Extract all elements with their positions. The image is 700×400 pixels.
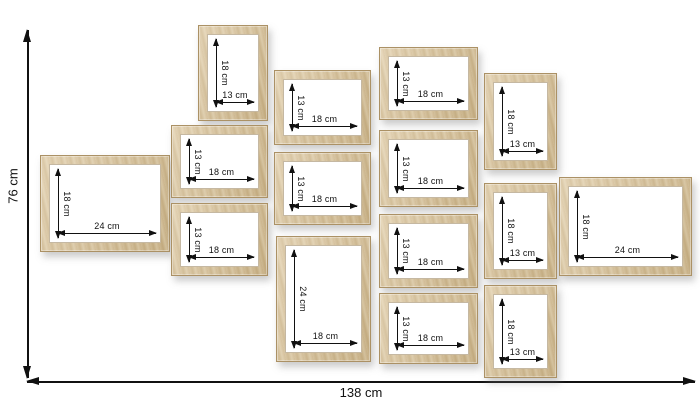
- width-dimension-arrow: [216, 102, 254, 103]
- overall-width-label: 138 cm: [27, 385, 695, 400]
- width-dimension-arrow: [189, 179, 254, 180]
- width-dimension-label: 18 cm: [189, 167, 254, 177]
- height-dimension-label: 18 cm: [506, 218, 516, 244]
- height-dimension-label: 24 cm: [298, 286, 308, 312]
- width-dimension-arrow: [58, 233, 156, 234]
- frame-opening: 13 cm 18 cm: [388, 56, 469, 111]
- frame-opening: 13 cm 18 cm: [180, 134, 259, 189]
- width-dimension-arrow: [189, 257, 254, 258]
- width-dimension-arrow: [502, 359, 543, 360]
- width-dimension-label: 18 cm: [397, 333, 464, 343]
- picture-frame-col3-top-18x13: 13 cm 18 cm: [274, 70, 371, 145]
- width-dimension-arrow: [292, 126, 357, 127]
- frame-opening: 13 cm 18 cm: [388, 302, 469, 355]
- picture-frame-col5-top-13x18: 18 cm 13 cm: [484, 73, 557, 170]
- frame-opening: 13 cm 18 cm: [388, 139, 469, 198]
- frame-opening: 18 cm 13 cm: [493, 294, 548, 369]
- picture-frame-col4-3-18x13: 13 cm 18 cm: [379, 214, 478, 288]
- frame-opening: 18 cm 13 cm: [493, 82, 548, 161]
- width-dimension-label: 18 cm: [292, 114, 357, 124]
- picture-frame-col5-bot-13x18: 18 cm 13 cm: [484, 285, 557, 378]
- width-dimension-label: 18 cm: [397, 176, 464, 186]
- frame-opening: 18 cm 13 cm: [493, 192, 548, 270]
- overall-width-arrow: [27, 381, 695, 383]
- height-dimension-label: 18 cm: [581, 214, 591, 240]
- width-dimension-label: 13 cm: [502, 248, 543, 258]
- frame-opening: 13 cm 18 cm: [283, 161, 362, 216]
- width-dimension-arrow: [397, 345, 464, 346]
- width-dimension-label: 24 cm: [577, 245, 678, 255]
- width-dimension-arrow: [502, 260, 543, 261]
- width-dimension-label: 18 cm: [397, 89, 464, 99]
- height-dimension-label: 18 cm: [506, 109, 516, 135]
- width-dimension-arrow: [292, 206, 357, 207]
- width-dimension-arrow: [294, 343, 357, 344]
- width-dimension-label: 24 cm: [58, 221, 156, 231]
- width-dimension-arrow: [397, 101, 464, 102]
- width-dimension-label: 18 cm: [189, 245, 254, 255]
- overall-height-arrow: [27, 30, 29, 378]
- picture-frame-col4-1-18x13: 13 cm 18 cm: [379, 47, 478, 120]
- width-dimension-arrow: [397, 269, 464, 270]
- overall-height-label: 76 cm: [6, 168, 21, 203]
- height-dimension-label: 18 cm: [62, 191, 72, 217]
- picture-frame-col2-mid-18x13: 13 cm 18 cm: [171, 125, 268, 198]
- width-dimension-label: 18 cm: [397, 257, 464, 267]
- picture-frame-left-24x18: 18 cm 24 cm: [40, 155, 170, 252]
- frame-opening: 13 cm 18 cm: [388, 223, 469, 279]
- width-dimension-arrow: [397, 188, 464, 189]
- frame-opening: 18 cm 13 cm: [207, 34, 259, 112]
- frame-opening: 24 cm 18 cm: [285, 245, 362, 353]
- width-dimension-label: 13 cm: [216, 90, 254, 100]
- width-dimension-label: 13 cm: [502, 139, 543, 149]
- height-dimension-label: 18 cm: [506, 319, 516, 345]
- picture-frame-col3-mid-18x13: 13 cm 18 cm: [274, 152, 371, 225]
- frame-opening: 13 cm 18 cm: [283, 79, 362, 136]
- width-dimension-label: 18 cm: [294, 331, 357, 341]
- width-dimension-label: 13 cm: [502, 347, 543, 357]
- width-dimension-arrow: [502, 151, 543, 152]
- frame-opening: 18 cm 24 cm: [49, 164, 161, 243]
- picture-frame-col4-2-18x13: 13 cm 18 cm: [379, 130, 478, 207]
- frame-opening: 13 cm 18 cm: [180, 212, 259, 267]
- gallery-wall-dimension-diagram: 76 cm 138 cm 18 cm 24 cm 18 cm 13 cm 13 …: [0, 0, 700, 400]
- picture-frame-col2-top-13x18: 18 cm 13 cm: [198, 25, 268, 121]
- picture-frame-right-24x18: 18 cm 24 cm: [559, 177, 692, 276]
- picture-frame-col4-4-18x13: 13 cm 18 cm: [379, 293, 478, 364]
- picture-frame-col2-bot-18x13: 13 cm 18 cm: [171, 203, 268, 276]
- picture-frame-col5-mid-13x18: 18 cm 13 cm: [484, 183, 557, 279]
- width-dimension-arrow: [577, 257, 678, 258]
- frame-opening: 18 cm 24 cm: [568, 186, 683, 267]
- picture-frame-col3-bot-18x24: 24 cm 18 cm: [276, 236, 371, 362]
- height-dimension-label: 18 cm: [220, 60, 230, 86]
- width-dimension-label: 18 cm: [292, 194, 357, 204]
